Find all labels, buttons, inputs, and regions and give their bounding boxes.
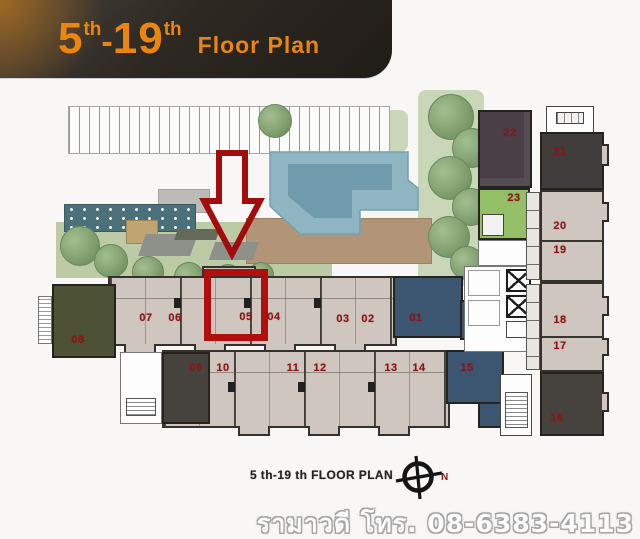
unit-06-label: 06: [168, 312, 181, 324]
tree-icon: [258, 104, 292, 138]
stairs: [505, 392, 528, 428]
balcony: [602, 338, 609, 356]
unit-15-label: 15: [460, 362, 473, 374]
service-room: [478, 240, 532, 266]
tree-icon: [94, 244, 128, 278]
utility-fixture: [556, 112, 584, 124]
unit-01-label: 01: [409, 312, 422, 324]
unit-16-block: [540, 372, 604, 436]
unit-09-block: [162, 352, 210, 424]
unit-divider: [542, 336, 602, 338]
unit-07-label: 07: [139, 312, 152, 324]
balcony: [602, 202, 609, 222]
floor-plan-page: 01 02 03 04 05 06 07 08 09 10 11 12 13 1…: [0, 0, 640, 539]
unit-16-label: 16: [550, 412, 563, 424]
unit-23-label: 23: [507, 192, 520, 204]
door-marker: [228, 382, 235, 392]
floor-plan-caption: 5 th-19 th FLOOR PLAN: [250, 468, 393, 482]
unit-22-label: 22: [503, 127, 516, 139]
stairs: [126, 398, 156, 416]
highlight-arrow-icon: [198, 150, 266, 262]
title-banner: 5th-19thFloor Plan: [0, 0, 392, 78]
balcony: [602, 144, 609, 166]
unit-21-label: 21: [553, 146, 566, 158]
watermark-text: รามาวดี โทร. 08-6383-4113: [257, 504, 634, 539]
unit-18-label: 18: [553, 314, 566, 326]
door-marker: [174, 298, 181, 308]
unit-20-label: 20: [553, 220, 566, 232]
unit-14-label: 14: [412, 362, 425, 374]
balcony: [602, 296, 609, 316]
unit-09-label: 09: [189, 362, 202, 374]
door-marker: [314, 298, 321, 308]
unit-08-label: 08: [71, 334, 84, 346]
unit-04-label: 04: [267, 311, 280, 323]
unit-21-block: [540, 132, 604, 190]
swimming-pool: [266, 146, 422, 240]
service-cells: [526, 192, 540, 280]
compass-north-label: N: [441, 472, 448, 483]
highlight-box: [204, 269, 268, 341]
service-room: [468, 270, 500, 296]
unit-13-label: 13: [384, 362, 397, 374]
unit-02-label: 02: [361, 313, 374, 325]
compass-icon: N: [392, 454, 454, 502]
banner-floor-plan-label: Floor Plan: [198, 32, 320, 58]
unit-03-label: 03: [336, 313, 349, 325]
unit-10-label: 10: [216, 362, 229, 374]
banner-floor-start: 5: [58, 14, 83, 63]
balcony: [238, 426, 270, 436]
balcony: [378, 426, 410, 436]
banner-floor-end: 19: [113, 14, 164, 63]
banner-dash: -: [101, 23, 112, 61]
banner-sup: th: [83, 19, 101, 40]
unit-20-19-block: [540, 190, 604, 282]
unit-01-block: [393, 276, 463, 338]
unit-divider: [542, 240, 602, 242]
unit-22-block: [478, 110, 532, 188]
banner-sup: th: [164, 19, 182, 40]
door-marker: [298, 382, 305, 392]
banner-title: 5th-19thFloor Plan: [58, 14, 320, 64]
unit-23-bathroom: [482, 214, 504, 236]
balcony: [308, 426, 340, 436]
unit-17-label: 17: [553, 340, 566, 352]
unit-19-label: 19: [553, 244, 566, 256]
balcony-hatch: [38, 296, 52, 344]
door-marker: [368, 382, 375, 392]
unit-12-label: 12: [313, 362, 326, 374]
unit-11-label: 11: [287, 362, 300, 374]
service-room: [468, 300, 500, 326]
balcony: [602, 392, 609, 412]
unit-15-block: [446, 350, 504, 404]
unit-18-17-block: [540, 282, 604, 372]
service-cells: [526, 284, 540, 370]
unit-08-block: [52, 284, 116, 358]
